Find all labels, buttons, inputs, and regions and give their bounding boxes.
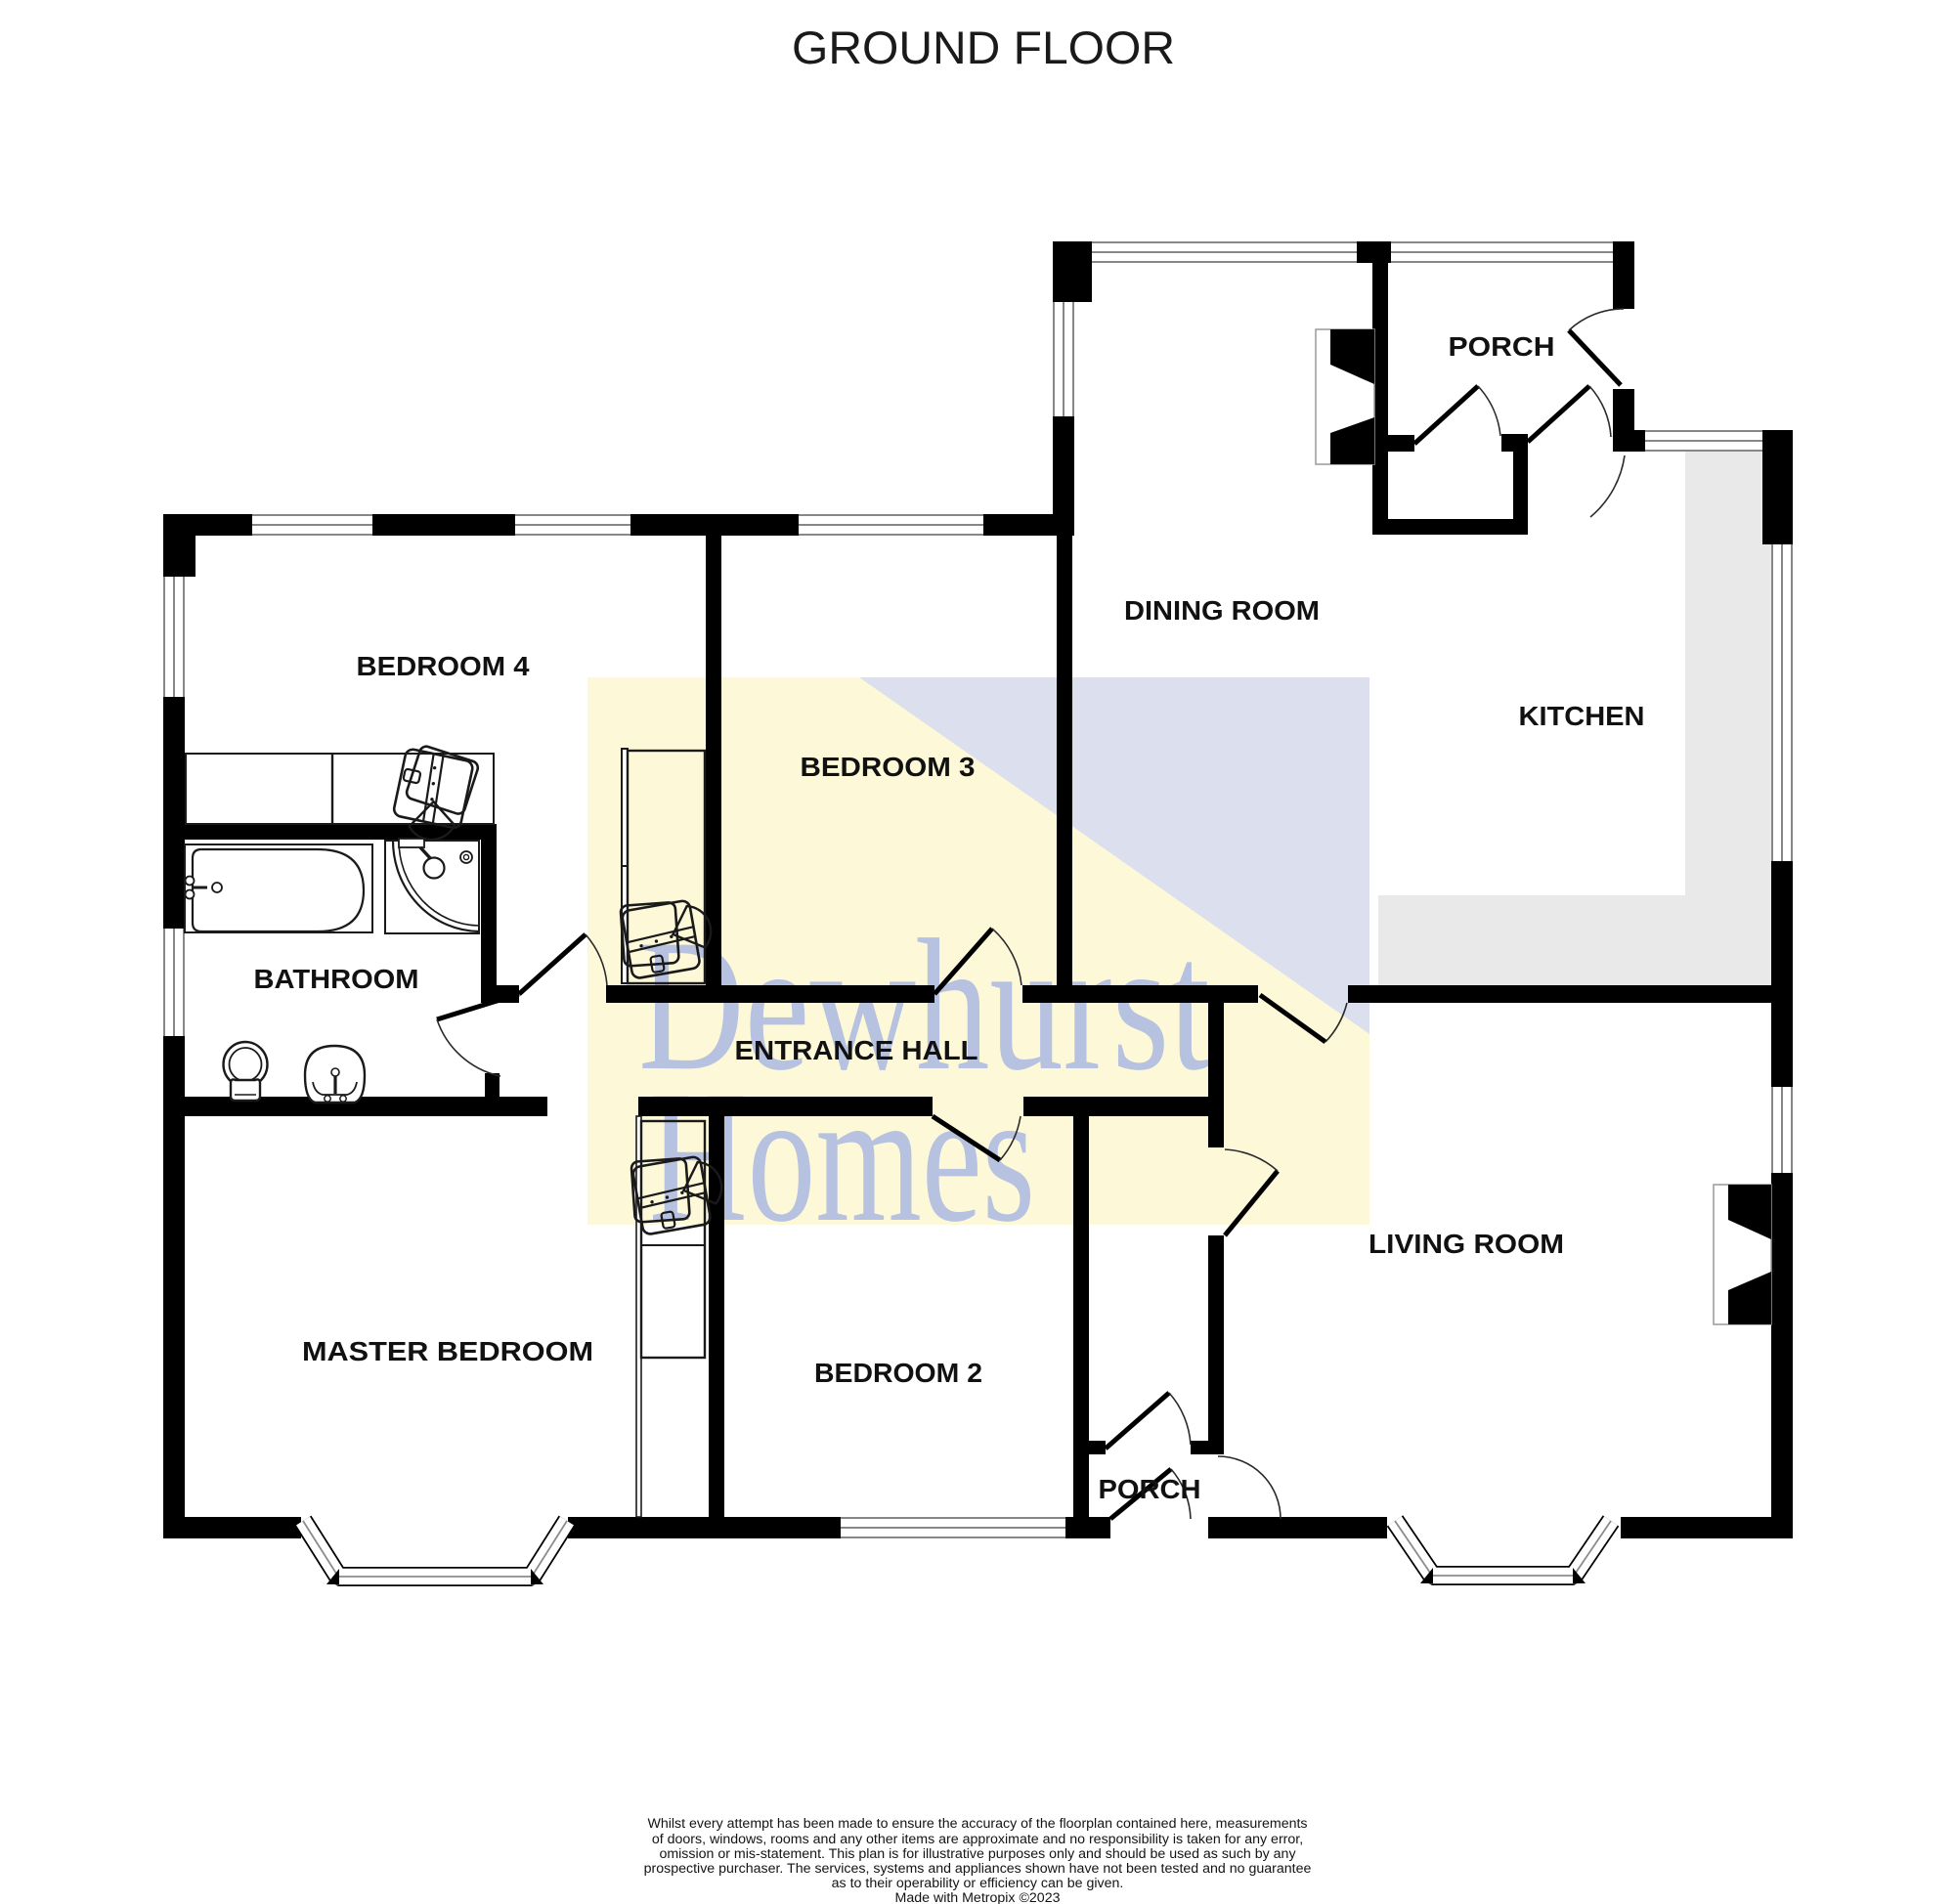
svg-text:LIVING ROOM: LIVING ROOM xyxy=(1368,1229,1564,1259)
svg-text:as to their operability or eff: as to their operability or efficiency ca… xyxy=(832,1876,1124,1891)
svg-text:prospective purchaser. The ser: prospective purchaser. The services, sys… xyxy=(644,1861,1312,1877)
svg-text:PORCH: PORCH xyxy=(1449,331,1555,362)
svg-text:GROUND FLOOR: GROUND FLOOR xyxy=(792,22,1175,73)
svg-text:BEDROOM 3: BEDROOM 3 xyxy=(801,752,976,782)
svg-text:omission or mis-statement. Thi: omission or mis-statement. This plan is … xyxy=(659,1846,1296,1862)
svg-text:DINING ROOM: DINING ROOM xyxy=(1124,595,1320,626)
svg-text:BATHROOM: BATHROOM xyxy=(254,964,419,994)
svg-text:KITCHEN: KITCHEN xyxy=(1519,701,1645,731)
svg-text:Homes: Homes xyxy=(649,1052,1035,1261)
svg-text:Made with Metropix ©2023: Made with Metropix ©2023 xyxy=(895,1890,1061,1904)
svg-text:of doors, windows, rooms and a: of doors, windows, rooms and any other i… xyxy=(652,1832,1303,1847)
svg-text:MASTER BEDROOM: MASTER BEDROOM xyxy=(302,1336,593,1366)
svg-text:BEDROOM 4: BEDROOM 4 xyxy=(357,651,530,681)
svg-text:PORCH: PORCH xyxy=(1099,1474,1201,1504)
svg-text:BEDROOM 2: BEDROOM 2 xyxy=(814,1358,982,1388)
svg-text:Whilst every attempt has been: Whilst every attempt has been made to en… xyxy=(647,1816,1307,1832)
svg-text:ENTRANCE HALL: ENTRANCE HALL xyxy=(735,1035,978,1065)
